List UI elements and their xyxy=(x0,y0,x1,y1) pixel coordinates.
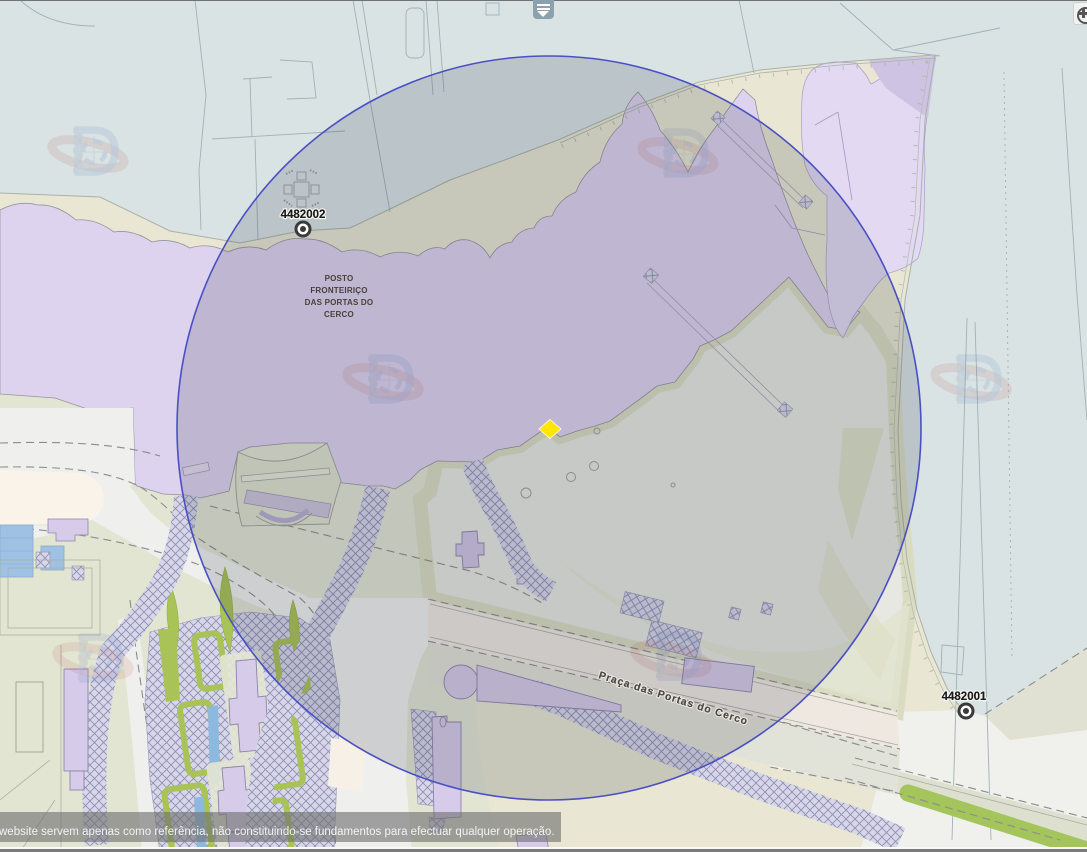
svg-text:4482001: 4482001 xyxy=(942,691,987,703)
svg-text:POSTO: POSTO xyxy=(325,274,354,283)
svg-text:CERCO: CERCO xyxy=(324,310,354,319)
svg-text:4482002: 4482002 xyxy=(281,209,326,221)
svg-text:FRONTEIRIÇO: FRONTEIRIÇO xyxy=(310,286,367,295)
svg-text:DAS PORTAS DO: DAS PORTAS DO xyxy=(305,298,374,307)
